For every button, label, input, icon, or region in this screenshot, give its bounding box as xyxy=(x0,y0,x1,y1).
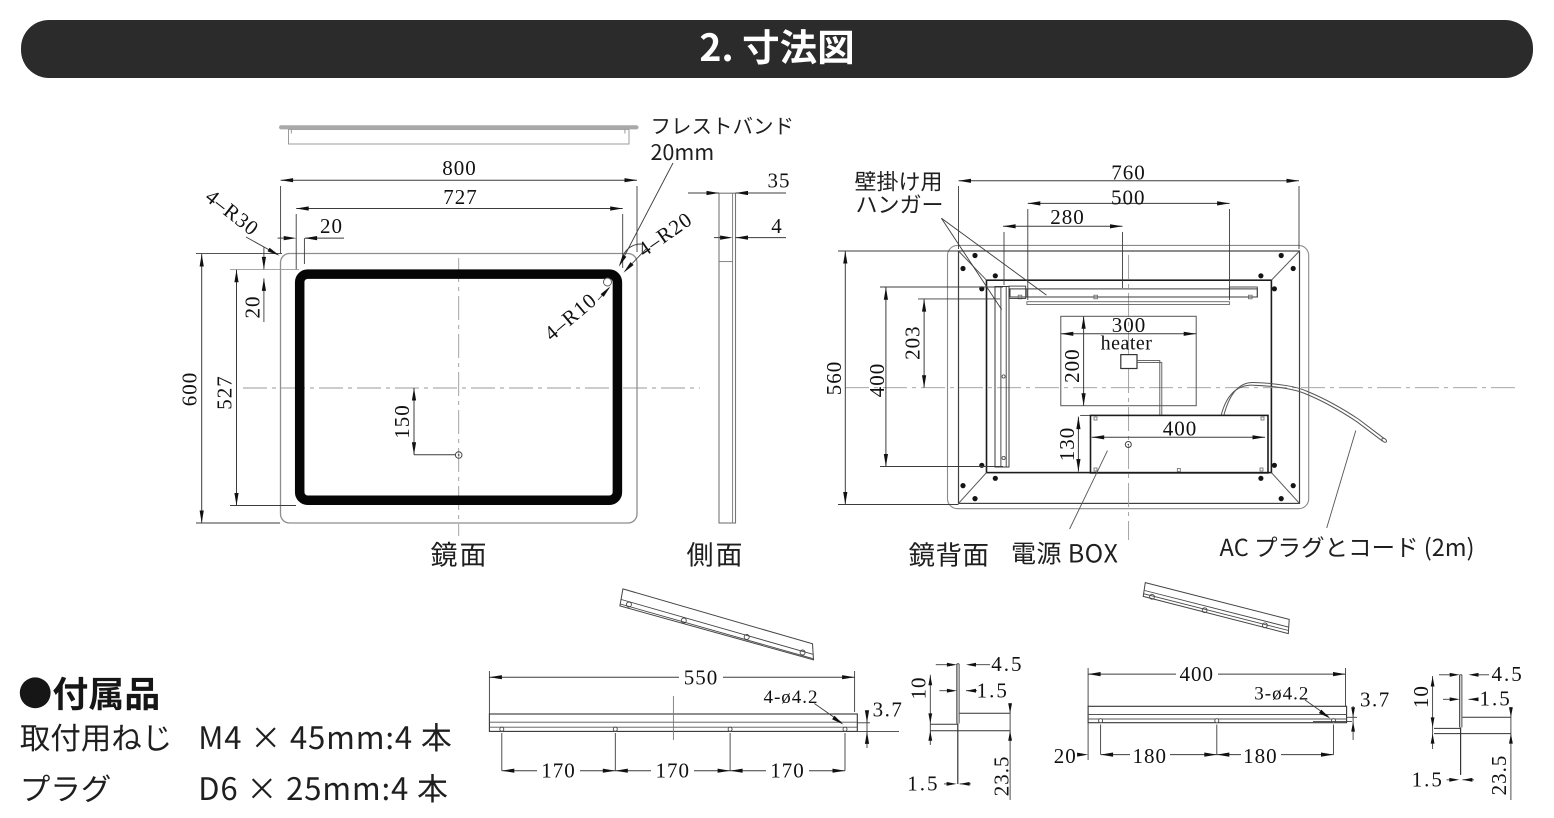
svg-text:3-ø4.2: 3-ø4.2 xyxy=(1254,684,1309,705)
svg-text:130: 130 xyxy=(1055,427,1079,462)
svg-text:4.5: 4.5 xyxy=(991,652,1023,676)
svg-text:20: 20 xyxy=(241,296,265,319)
svg-text:180: 180 xyxy=(1132,744,1167,768)
svg-text:760: 760 xyxy=(1111,161,1146,185)
svg-text:280: 280 xyxy=(1050,205,1085,229)
svg-text:527: 527 xyxy=(213,375,237,410)
svg-text:10: 10 xyxy=(907,677,931,700)
svg-text:560: 560 xyxy=(822,361,846,396)
svg-text:200: 200 xyxy=(1060,348,1084,383)
svg-text:4.5: 4.5 xyxy=(1491,662,1523,686)
svg-text:1.5: 1.5 xyxy=(1479,687,1511,711)
svg-text:727: 727 xyxy=(443,185,478,209)
svg-text:170: 170 xyxy=(655,759,690,783)
svg-text:20: 20 xyxy=(1054,744,1077,768)
svg-text:550: 550 xyxy=(684,666,719,690)
svg-text:500: 500 xyxy=(1111,186,1146,210)
svg-text:23.5: 23.5 xyxy=(1487,755,1511,796)
svg-text:3.7: 3.7 xyxy=(873,698,904,722)
svg-text:170: 170 xyxy=(541,759,576,783)
svg-text:20: 20 xyxy=(320,214,343,238)
svg-text:400: 400 xyxy=(865,363,889,398)
svg-text:170: 170 xyxy=(770,759,805,783)
svg-text:150: 150 xyxy=(390,404,414,439)
svg-text:400: 400 xyxy=(1163,417,1198,441)
svg-text:800: 800 xyxy=(442,156,477,180)
svg-text:180: 180 xyxy=(1243,744,1278,768)
svg-text:600: 600 xyxy=(178,372,202,407)
svg-text:23.5: 23.5 xyxy=(990,756,1014,797)
svg-text:4-ø4.2: 4-ø4.2 xyxy=(763,687,818,708)
svg-text:10: 10 xyxy=(1409,685,1433,708)
svg-text:1.5: 1.5 xyxy=(977,679,1009,703)
svg-text:4: 4 xyxy=(771,214,783,238)
svg-text:203: 203 xyxy=(901,325,925,360)
svg-text:35: 35 xyxy=(768,169,791,193)
svg-text:1.5: 1.5 xyxy=(1412,768,1444,792)
svg-text:heater: heater xyxy=(1101,333,1153,355)
svg-text:1.5: 1.5 xyxy=(907,772,939,796)
svg-text:3.7: 3.7 xyxy=(1360,688,1391,712)
svg-text:400: 400 xyxy=(1180,662,1215,686)
